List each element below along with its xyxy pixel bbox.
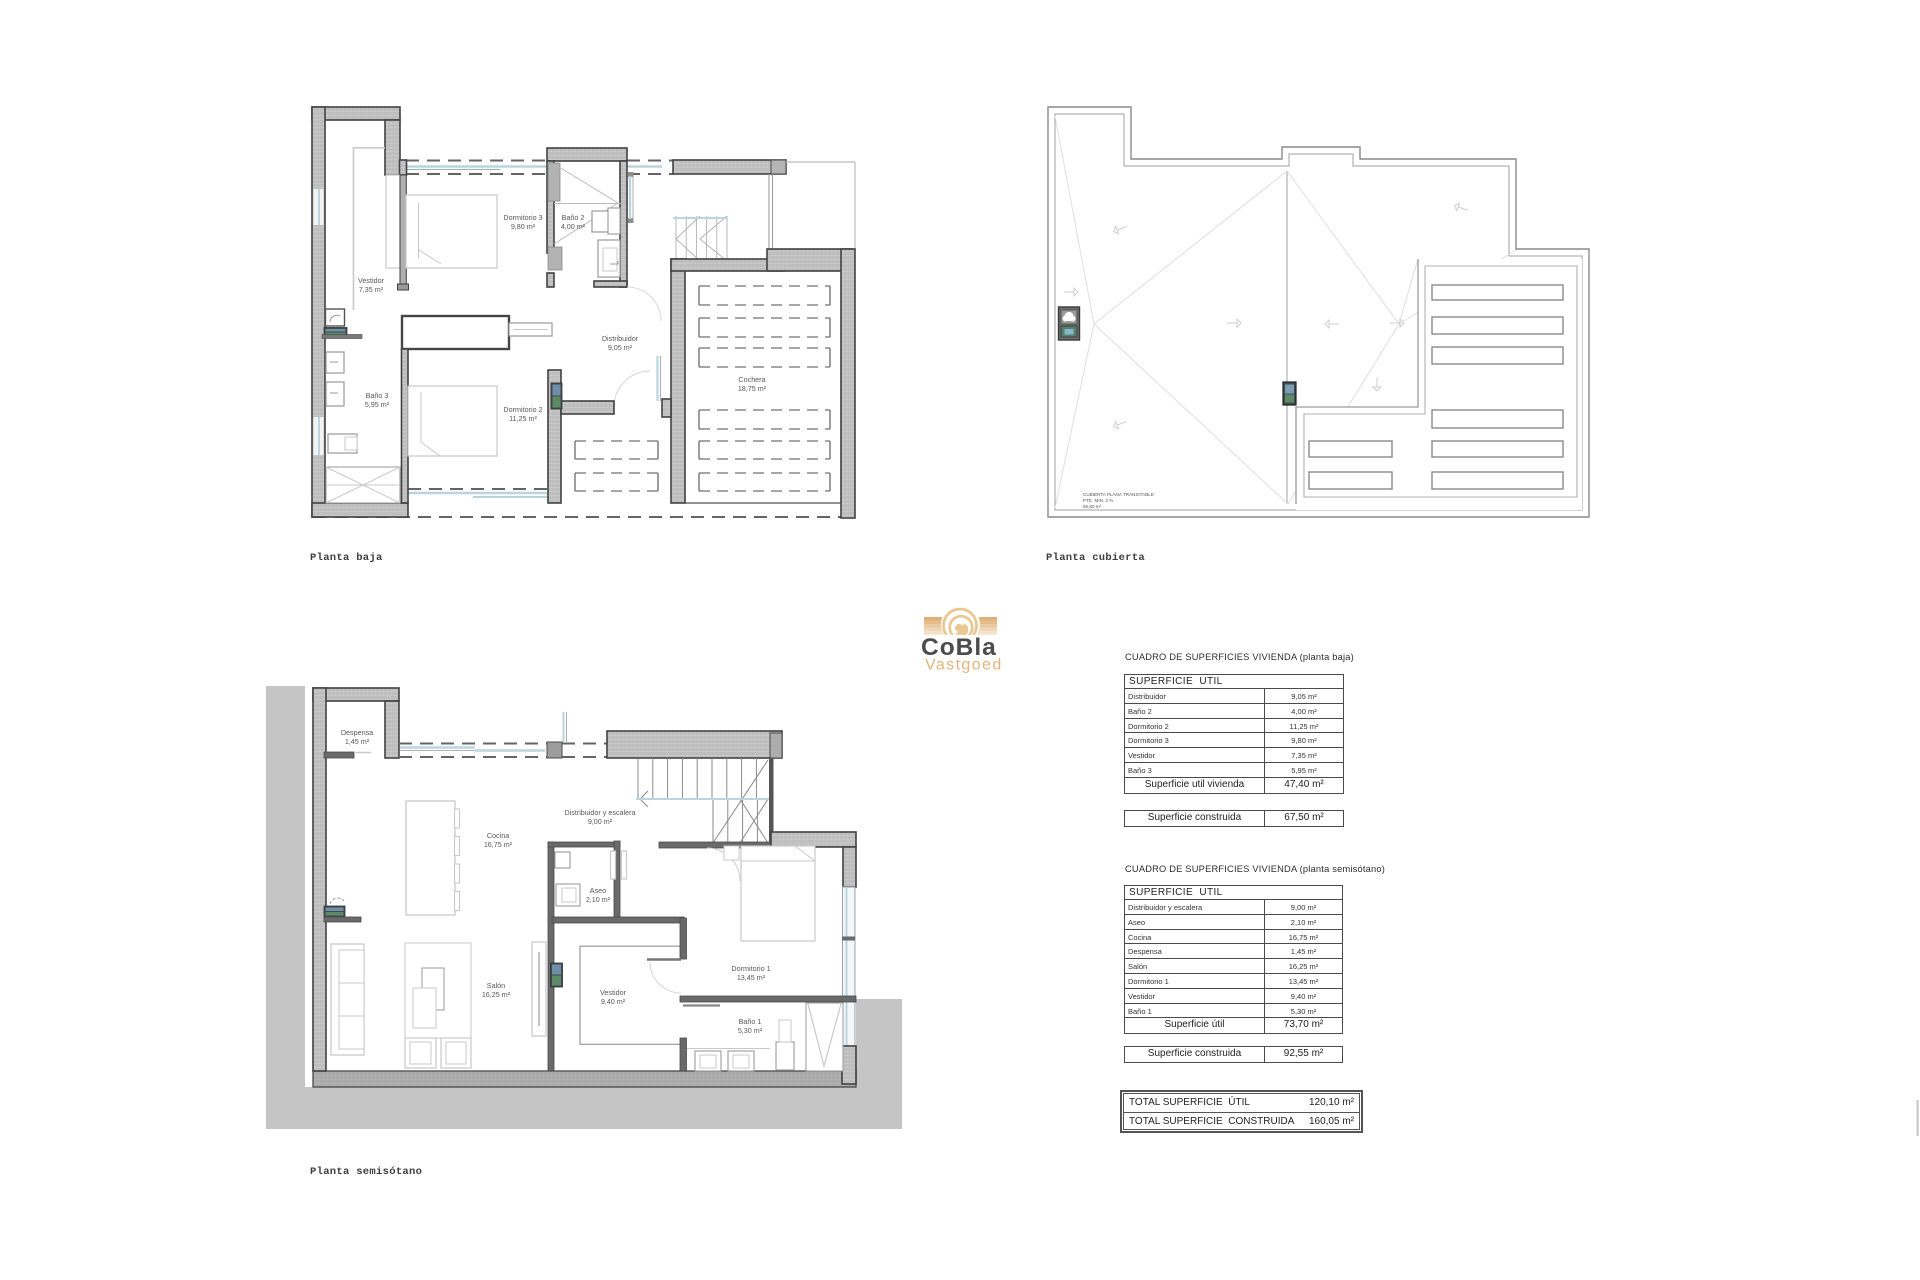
svg-text:CUBIERTA PLANA TRANSITABLE: CUBIERTA PLANA TRANSITABLE bbox=[1083, 492, 1154, 497]
svg-text:5,30 m²: 5,30 m² bbox=[738, 1026, 763, 1035]
svg-text:Baño 1: Baño 1 bbox=[739, 1017, 762, 1026]
svg-text:PTE. MIN. 2 %: PTE. MIN. 2 % bbox=[1083, 498, 1113, 503]
svg-text:1,45 m²: 1,45 m² bbox=[345, 737, 370, 746]
svg-text:Cochera: Cochera bbox=[738, 375, 765, 384]
svg-text:Salón: Salón bbox=[487, 981, 505, 990]
svg-text:Vestidor: Vestidor bbox=[358, 276, 385, 285]
svg-text:Planta cubierta: Planta cubierta bbox=[1046, 552, 1145, 564]
svg-text:9,40 m²: 9,40 m² bbox=[601, 997, 626, 1006]
svg-text:56,80 m²: 56,80 m² bbox=[1083, 504, 1102, 509]
svg-text:Dormitorio 3: Dormitorio 3 bbox=[503, 213, 542, 222]
svg-text:Dormitorio 2: Dormitorio 2 bbox=[503, 405, 542, 414]
svg-text:2,10 m²: 2,10 m² bbox=[586, 895, 611, 904]
svg-text:5,95 m²: 5,95 m² bbox=[365, 400, 390, 409]
svg-text:13,45 m²: 13,45 m² bbox=[737, 973, 766, 982]
svg-text:16,75 m²: 16,75 m² bbox=[484, 840, 513, 849]
svg-text:Planta baja: Planta baja bbox=[310, 552, 383, 564]
svg-text:9,05 m²: 9,05 m² bbox=[608, 343, 633, 352]
svg-text:Vastgoed: Vastgoed bbox=[925, 657, 1003, 674]
svg-text:Baño 3: Baño 3 bbox=[366, 391, 389, 400]
svg-text:Dormitorio 1: Dormitorio 1 bbox=[731, 964, 770, 973]
svg-text:9,80 m²: 9,80 m² bbox=[511, 222, 536, 231]
svg-text:Baño 2: Baño 2 bbox=[562, 213, 585, 222]
svg-text:Vestidor: Vestidor bbox=[600, 988, 627, 997]
svg-text:4,00 m²: 4,00 m² bbox=[561, 222, 586, 231]
svg-text:Despensa: Despensa bbox=[341, 728, 373, 737]
svg-text:Cocina: Cocina bbox=[487, 831, 509, 840]
svg-text:7,35 m²: 7,35 m² bbox=[359, 285, 384, 294]
svg-text:Aseo: Aseo bbox=[590, 886, 606, 895]
svg-text:11,25 m²: 11,25 m² bbox=[509, 414, 537, 423]
svg-text:Distribuidor: Distribuidor bbox=[602, 334, 639, 343]
svg-text:Distribuidor y escalera: Distribuidor y escalera bbox=[564, 808, 635, 817]
svg-text:9,00 m²: 9,00 m² bbox=[588, 817, 613, 826]
svg-text:Planta semisótano: Planta semisótano bbox=[310, 1166, 422, 1178]
svg-text:16,25 m²: 16,25 m² bbox=[482, 990, 511, 999]
svg-text:18,75 m²: 18,75 m² bbox=[738, 384, 767, 393]
